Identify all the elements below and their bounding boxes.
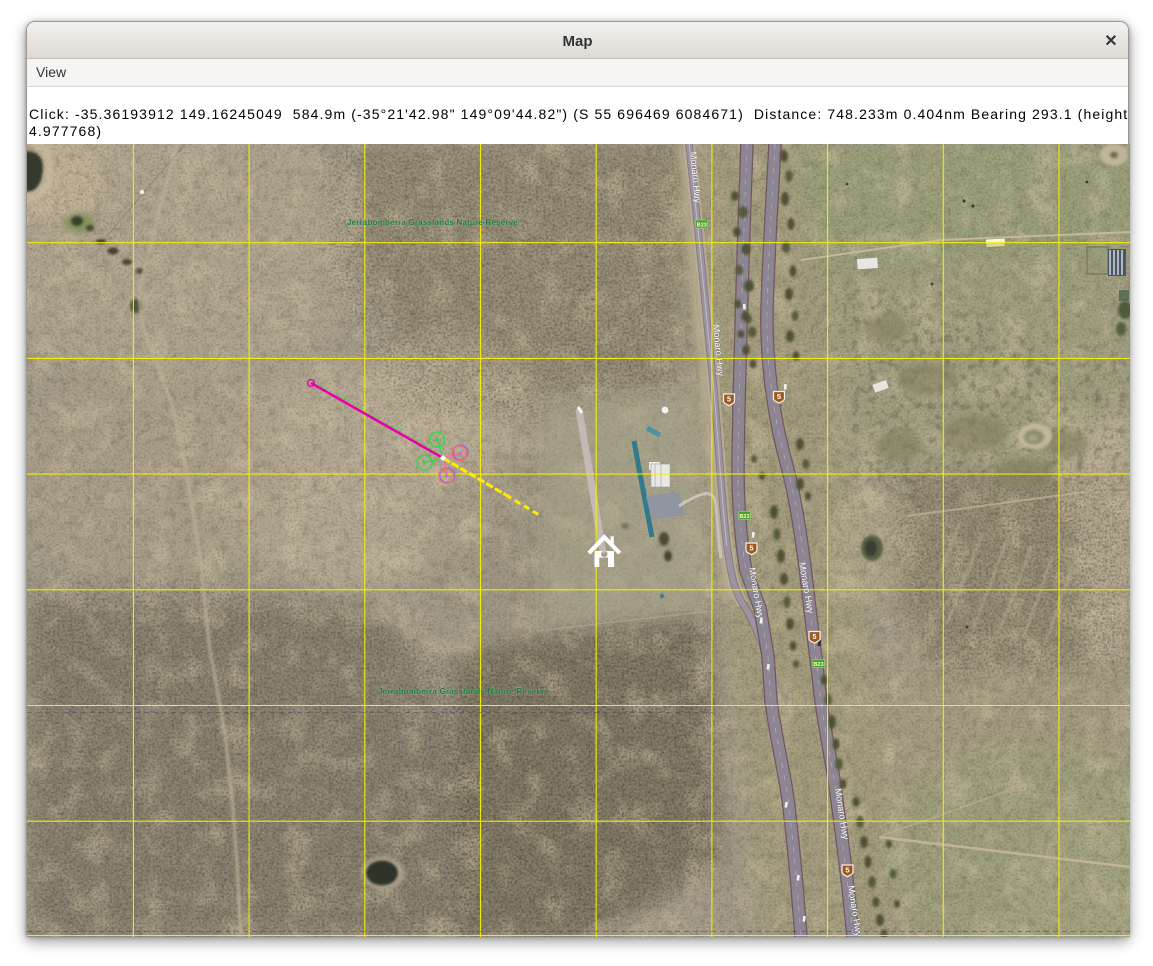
svg-text:5: 5: [749, 544, 753, 553]
svg-text:Jerrabomberra Grasslands Natur: Jerrabomberra Grasslands Nature Reserve: [378, 687, 549, 696]
svg-text:Jerrabomberra Grasslands Natur: Jerrabomberra Grasslands Nature Reserve: [347, 218, 518, 227]
svg-text:5: 5: [845, 866, 849, 875]
svg-text:B23: B23: [697, 222, 707, 228]
svg-text:5: 5: [812, 632, 816, 641]
svg-text:B23: B23: [813, 662, 823, 668]
svg-text:5: 5: [727, 395, 731, 404]
svg-text:B23: B23: [739, 514, 749, 520]
svg-text:5: 5: [777, 392, 781, 401]
